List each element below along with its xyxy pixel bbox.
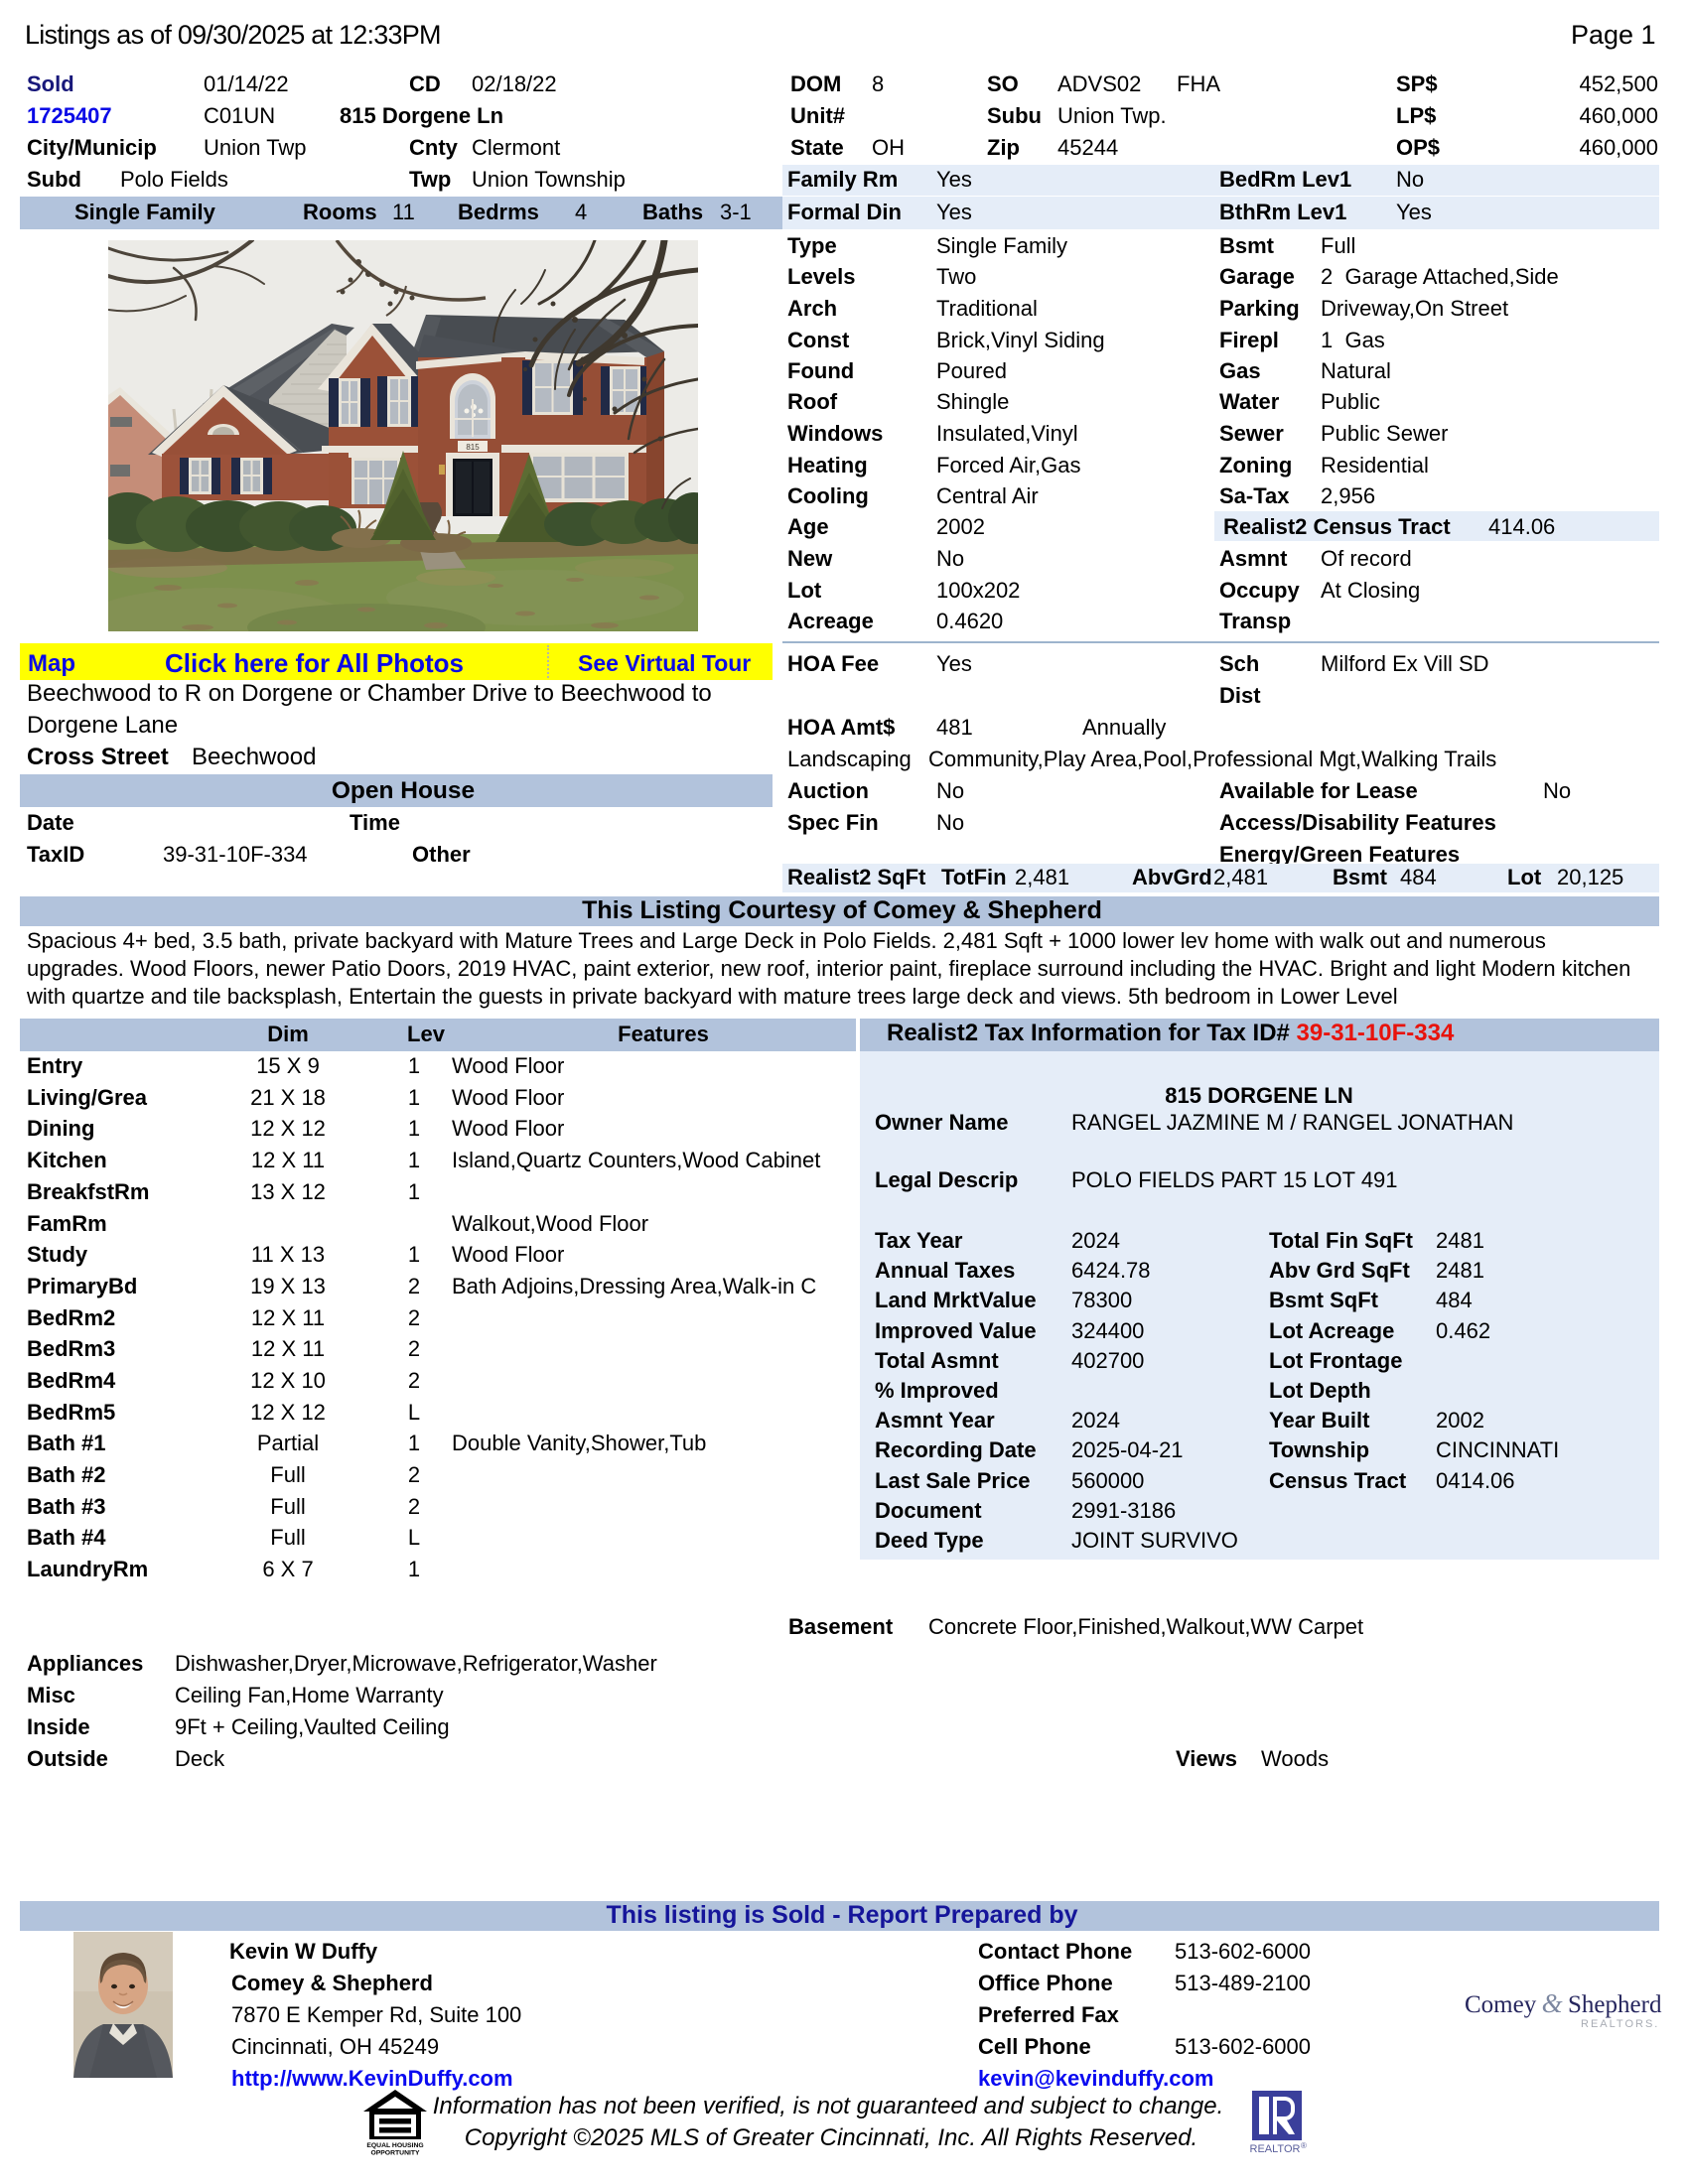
svg-text:EQUAL HOUSING: EQUAL HOUSING bbox=[366, 2142, 423, 2149]
svg-text:815: 815 bbox=[466, 443, 480, 452]
svg-text:®: ® bbox=[1301, 2141, 1307, 2150]
svg-text:REALTOR: REALTOR bbox=[1250, 2143, 1301, 2155]
svg-text:OPPORTUNITY: OPPORTUNITY bbox=[370, 2150, 420, 2157]
